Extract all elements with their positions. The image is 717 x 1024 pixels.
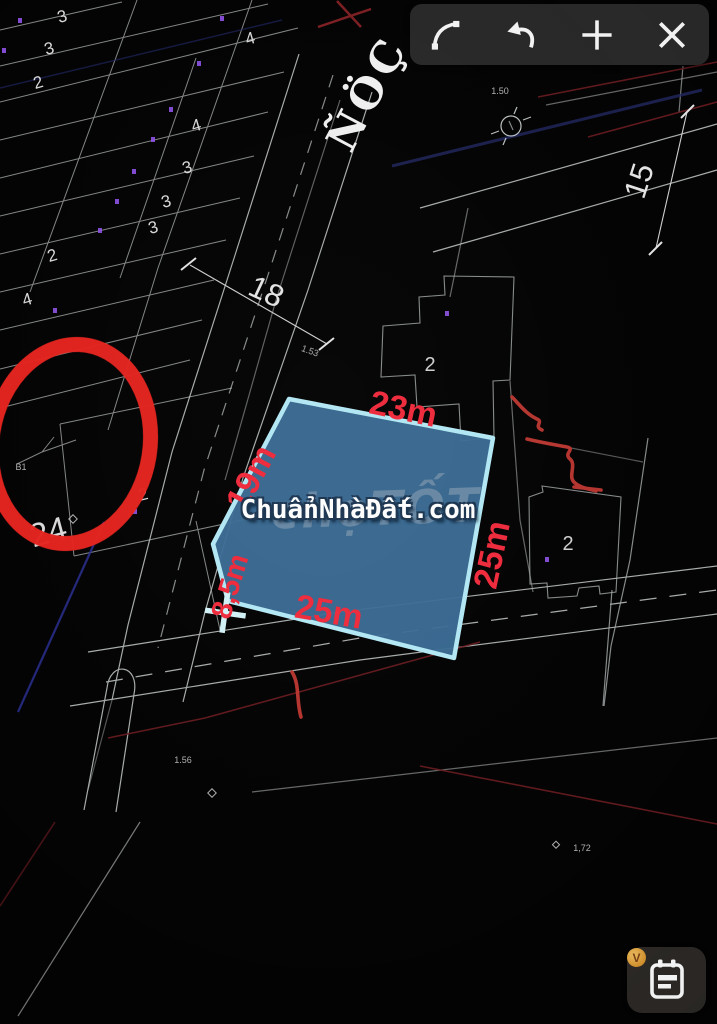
drawing-toolbar xyxy=(410,4,709,65)
lot-number: 3 xyxy=(146,217,160,238)
notes-button[interactable]: V xyxy=(627,947,706,1013)
lot-number: 4 xyxy=(20,289,34,310)
close-button[interactable] xyxy=(643,8,701,62)
elevation-mark: 1.53 xyxy=(300,343,320,358)
street-name-label: ÑÖÇ xyxy=(315,26,418,159)
building-2-outline xyxy=(529,486,621,598)
plus-icon xyxy=(579,17,615,53)
undo-button[interactable] xyxy=(493,8,551,62)
elevation-mark: 1.50 xyxy=(491,86,509,96)
annotation-circle xyxy=(0,333,165,555)
lot-number: 3 xyxy=(180,157,194,178)
calendar-note-icon xyxy=(649,958,685,1000)
close-icon xyxy=(655,18,689,52)
road-width-label: 15 xyxy=(617,159,661,203)
lot-number: 4 xyxy=(189,115,203,136)
map-canvas[interactable]: 3 3 2 4 4 3 3 3 2 4 2 24 2 2 1.50 1.53 1… xyxy=(0,0,717,1024)
dimension-18: 18 xyxy=(181,258,334,350)
lot-number: 3 xyxy=(159,191,173,212)
building-number: 2 xyxy=(562,533,573,555)
arc-tool-button[interactable] xyxy=(418,8,476,62)
point-label: B1 xyxy=(15,462,26,472)
lot-number: 3 xyxy=(55,6,69,27)
road-width-label: 18 xyxy=(243,268,289,314)
add-button[interactable] xyxy=(568,8,626,62)
elevation-mark: 1.56 xyxy=(174,755,192,765)
undo-icon xyxy=(504,17,540,53)
parcel: 23m 19m 8,5m 25m 25m xyxy=(202,384,518,658)
elevation-mark: 1,72 xyxy=(573,843,591,853)
lot-number: 2 xyxy=(45,245,59,266)
building-number: 2 xyxy=(424,354,435,376)
lot-number: 2 xyxy=(31,72,45,93)
map-viewer-screen: 3 3 2 4 4 3 3 3 2 4 2 24 2 2 1.50 1.53 1… xyxy=(0,0,717,1024)
arc-tool-icon xyxy=(429,17,465,53)
version-badge: V xyxy=(627,948,646,967)
